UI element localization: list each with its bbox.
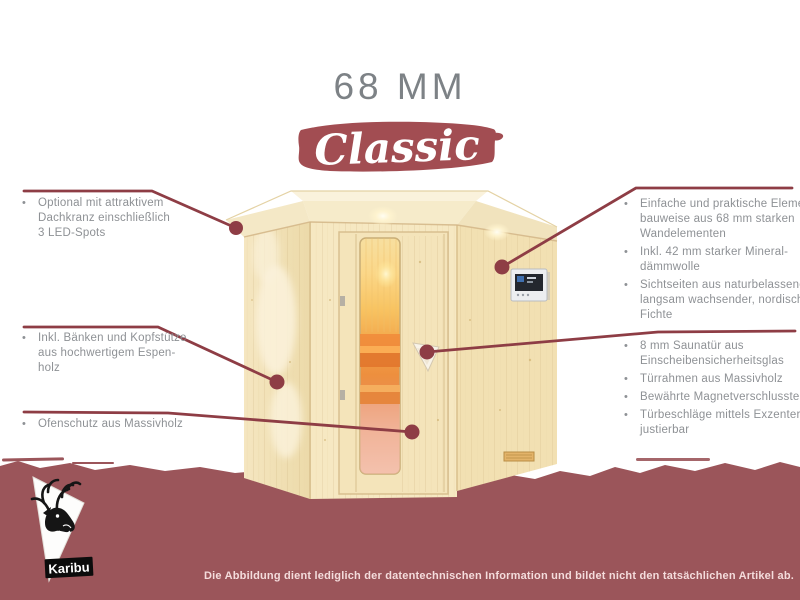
text-line: Wandelementen	[640, 227, 800, 242]
annotation-entry: • Ofenschutz aus Massivholz	[20, 417, 220, 432]
text-line: Fichte	[640, 308, 800, 323]
bullet-dot: •	[624, 339, 628, 354]
hinge-icon	[340, 390, 345, 400]
bullet-dot: •	[624, 197, 628, 212]
text-line: Dachkranz einschließlich	[38, 211, 220, 226]
disclaimer-text: Die Abbildung dient lediglich der datent…	[204, 570, 794, 582]
text-line: Optional mit attraktivem	[38, 196, 220, 211]
bench-backrest	[360, 334, 400, 346]
annotation-entry: • Inkl. 42 mm starker Mineral- dämmwolle	[622, 245, 800, 275]
text-line: 8 mm Saunatür aus	[640, 339, 800, 354]
annotation-entry: • Optional mit attraktivem Dachkranz ein…	[20, 196, 220, 241]
bullet-dot: •	[624, 390, 628, 405]
pointer-dot	[495, 260, 510, 275]
bullet-dot: •	[624, 372, 628, 387]
annotation-wandelemente: • Einfache und praktische Element- bauwe…	[622, 197, 800, 326]
text-line: Sichtseiten aus naturbelassener,	[640, 278, 800, 293]
annotation-ofenschutz: • Ofenschutz aus Massivholz	[20, 417, 220, 435]
bullet-dot: •	[624, 408, 628, 423]
bullet-dot: •	[624, 278, 628, 293]
annotation-entry: • Einfache und praktische Element- bauwe…	[622, 197, 800, 242]
bench-lower	[360, 385, 400, 392]
text-line: bauweise aus 68 mm starken	[640, 212, 800, 227]
annotation-entry: • Inkl. Bänken und Kopfstütze aus hochwe…	[20, 331, 220, 376]
text-line: Türbeschläge mittels Exzenter	[640, 408, 800, 423]
karibu-wordmark: Karibu	[48, 559, 90, 576]
annotation-entry: • Türrahmen aus Massivholz	[622, 372, 800, 387]
annotation-entry: • 8 mm Saunatür aus Einscheibensicherhei…	[622, 339, 800, 369]
text-line: langsam wachsender, nordischer	[640, 293, 800, 308]
annotation-saunatuer: • 8 mm Saunatür aus Einscheibensicherhei…	[622, 339, 800, 441]
text-line: aus hochwertigem Espen-	[38, 346, 220, 361]
annotation-entry: • Bewährte Magnetverschlusstechnik	[622, 390, 800, 405]
annotation-entry: • Sichtseiten aus naturbelassener, langs…	[622, 278, 800, 323]
text-line: Einfache und praktische Element-	[640, 197, 800, 212]
text-line: justierbar	[640, 423, 800, 438]
text-line: Bewährte Magnetverschlusstechnik	[640, 390, 800, 405]
text-line: dämmwolle	[640, 260, 800, 275]
annotation-entry: • Türbeschläge mittels Exzenter justierb…	[622, 408, 800, 438]
page-title: 68 MM	[0, 66, 800, 108]
pointer-dot	[270, 375, 285, 390]
product-line-badge: Classic	[299, 118, 495, 177]
bullet-dot: •	[624, 245, 628, 260]
text-line: Inkl. Bänken und Kopfstütze	[38, 331, 220, 346]
text-line: Inkl. 42 mm starker Mineral-	[640, 245, 800, 260]
pointer-dot	[229, 221, 243, 235]
text-line: Ofenschutz aus Massivholz	[38, 417, 220, 432]
sauna-door	[339, 232, 448, 494]
text-line: holz	[38, 361, 220, 376]
text-line: 3 LED-Spots	[38, 226, 220, 241]
control-panel-icon	[511, 269, 550, 301]
pointer-dot	[405, 425, 420, 440]
text-line: Türrahmen aus Massivholz	[640, 372, 800, 387]
vent-strip-icon	[504, 452, 534, 461]
bullet-dot: •	[22, 331, 26, 346]
bullet-dot: •	[22, 196, 26, 211]
annotation-baenke: • Inkl. Bänken und Kopfstütze aus hochwe…	[20, 331, 220, 379]
pointer-dot	[420, 345, 435, 360]
hinge-icon	[340, 296, 345, 306]
bullet-dot: •	[22, 417, 26, 432]
glass-door-panel	[360, 238, 400, 474]
product-sheet: Karibu 68 MM Classic • Optional mit attr…	[0, 0, 800, 600]
text-line: Einscheibensicherheitsglas	[640, 354, 800, 369]
left-wall	[244, 222, 310, 499]
annotation-dachkranz: • Optional mit attraktivem Dachkranz ein…	[20, 196, 220, 244]
